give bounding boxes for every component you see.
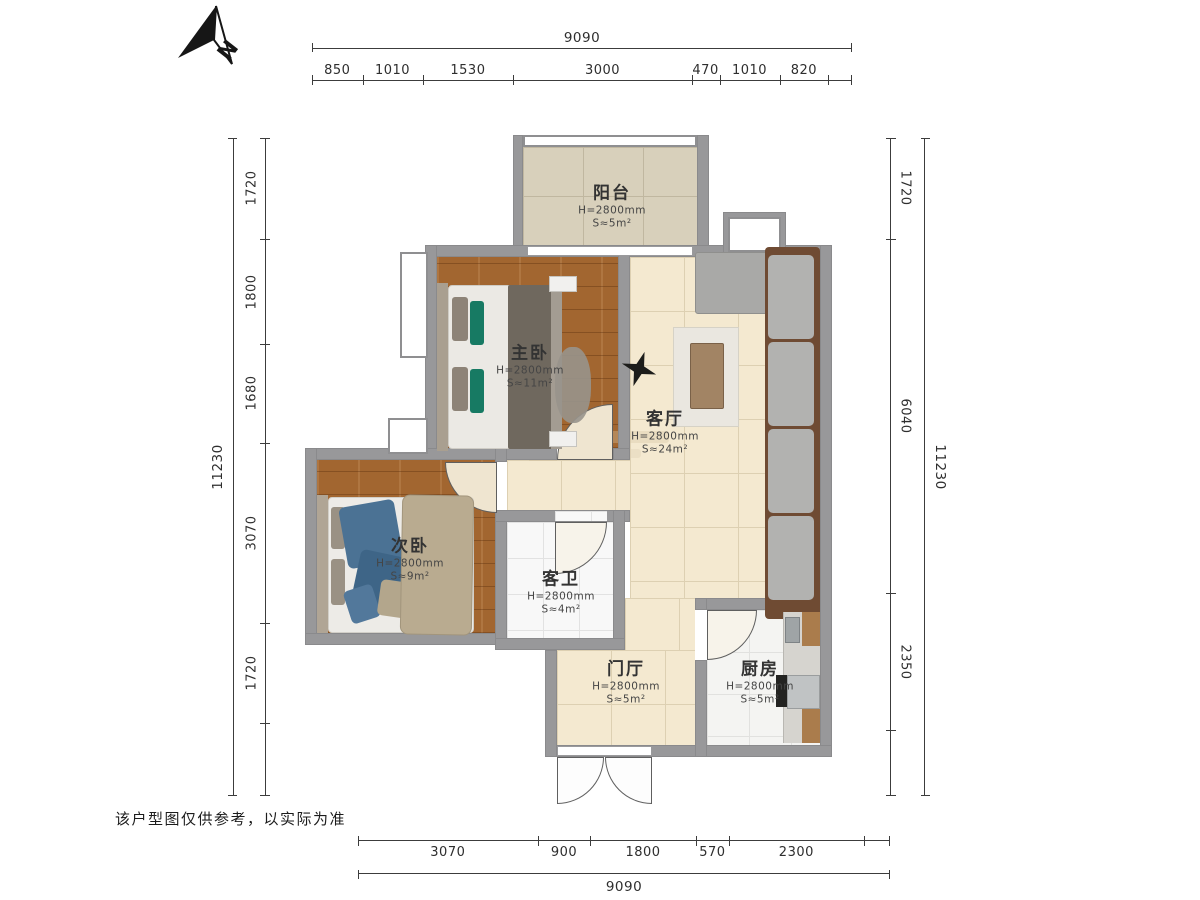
dimension-segment: 1720: [891, 138, 918, 239]
dimension-total-top: 9090: [312, 26, 852, 49]
pillow-teal: [470, 369, 484, 413]
dimension-label: 3070: [244, 515, 259, 550]
sofa-cushion: [768, 516, 814, 600]
nightstand: [549, 431, 577, 447]
wall-segment: [820, 245, 832, 757]
pillow-gray: [452, 367, 468, 411]
dimension-label: 2300: [729, 845, 864, 860]
pillow-gray: [331, 559, 345, 605]
ceiling-fan-icon: [619, 349, 659, 389]
dimension-segment-filler: [828, 55, 852, 80]
room-label-master-bedroom: 主卧 H=2800mm S≈11m²: [496, 343, 564, 391]
dimension-total-left: 11230: [203, 138, 234, 796]
sofa-cushion: [768, 255, 814, 339]
dimension-segments-right: 1720 6040 2350: [890, 138, 918, 796]
dimension-label: 9090: [312, 30, 852, 46]
kitchen-counter-wood: [802, 612, 820, 646]
dimension-label: 3000: [513, 63, 691, 78]
pillow-gray: [452, 297, 468, 341]
dimension-segments-left: 1720 1800 1680 3070 1720: [238, 138, 266, 796]
room-name: 客卫: [527, 569, 595, 590]
dimension-segment: 1010: [720, 55, 780, 80]
floor-plan-page: N: [0, 0, 1200, 900]
wall-segment: [305, 448, 317, 645]
room-height: H=2800mm: [726, 681, 794, 694]
entry-door-leaf-left: [557, 757, 604, 804]
dimension-segment: 1800: [238, 239, 265, 344]
wall-segment: [305, 448, 557, 460]
room-height: H=2800mm: [592, 681, 660, 694]
room-area: S≈9m²: [376, 571, 444, 584]
room-label-second-bedroom: 次卧 H=2800mm S≈9m²: [376, 536, 444, 584]
sliding-door-balcony: [527, 246, 693, 256]
coffee-table: [690, 343, 724, 409]
pillow-teal: [470, 301, 484, 345]
room-area: S≈24m²: [631, 444, 699, 457]
dimension-segment: 900: [538, 841, 591, 865]
dimension-label: 1720: [244, 171, 259, 206]
dimension-label: 1720: [244, 655, 259, 690]
dimension-segment: 1530: [423, 55, 514, 80]
dimension-segment: 6040: [891, 239, 918, 593]
dimension-label: 1530: [423, 63, 514, 78]
window-balcony: [523, 135, 697, 147]
wall-segment: [695, 598, 707, 610]
dimension-segment: 1680: [238, 344, 265, 442]
dimension-segment-filler: [238, 723, 265, 796]
dimension-segments-top: 850 1010 1530 3000 470 1010 820: [312, 55, 852, 81]
dimension-segment: 2350: [891, 593, 918, 731]
room-height: H=2800mm: [376, 558, 444, 571]
room-name: 客厅: [631, 409, 699, 430]
room-name: 门厅: [592, 659, 660, 680]
dimension-chain-bottom: 3070 900 1800 570 2300 9090: [358, 840, 890, 898]
dimension-segment: 3070: [238, 443, 265, 623]
kitchen-sink: [785, 617, 800, 643]
dimension-label: 850: [312, 63, 363, 78]
dimension-segment: 1010: [363, 55, 423, 80]
room-area: S≈4m²: [527, 604, 595, 617]
entry-door-leaf-right: [605, 757, 652, 804]
wall-segment: [613, 510, 625, 650]
dimension-segment: 850: [312, 55, 363, 80]
bed-headboard-second: [317, 495, 328, 633]
dimension-segments-bottom: 3070 900 1800 570 2300: [358, 840, 890, 865]
room-name: 厨房: [726, 659, 794, 680]
dimension-segment: 1800: [590, 841, 695, 865]
wall-segment: [495, 513, 507, 645]
bed-headboard-master: [437, 283, 448, 451]
dimension-label: 1800: [590, 845, 695, 860]
room-area: S≈5m²: [726, 694, 794, 707]
dimension-label: 820: [780, 63, 829, 78]
dimension-label: 9090: [358, 879, 890, 895]
dimension-segment: 1720: [238, 138, 265, 239]
dimension-segment: 820: [780, 55, 829, 80]
dimension-segment: 570: [696, 841, 729, 865]
dimension-total-bottom: 9090: [358, 873, 890, 898]
dimension-segment: 3070: [358, 841, 538, 865]
dimension-label: 11230: [932, 444, 948, 489]
sofa-cushion: [768, 429, 814, 513]
dimension-label: 1010: [363, 63, 423, 78]
dimension-chain-top: 9090 850 1010 1530 3000 470 1010 820: [312, 26, 852, 81]
dimension-label: 900: [538, 845, 591, 860]
entry-door-opening: [557, 746, 652, 756]
room-label-kitchen: 厨房 H=2800mm S≈5m²: [726, 659, 794, 707]
north-arrow-icon: N: [150, 0, 280, 90]
wall-segment: [545, 650, 557, 757]
room-area: S≈11m²: [496, 378, 564, 391]
dimension-label: 1720: [897, 171, 912, 206]
room-area: S≈5m²: [578, 218, 646, 231]
nightstand: [549, 276, 577, 292]
wall-segment: [305, 633, 507, 645]
window-master-bedroom: [400, 252, 428, 358]
dimension-segment: 3000: [513, 55, 691, 80]
dimension-chain-left: 11230 1720 1800 1680 3070 1720: [203, 138, 267, 796]
room-height: H=2800mm: [527, 591, 595, 604]
wall-segment: [613, 448, 630, 460]
room-height: H=2800mm: [631, 431, 699, 444]
dimension-segment: 470: [692, 55, 720, 80]
door-opening-bathroom: [555, 511, 607, 521]
wall-segment: [697, 135, 709, 257]
room-name: 主卧: [496, 343, 564, 364]
dimension-label: 11230: [210, 444, 226, 489]
room-name: 次卧: [376, 536, 444, 557]
room-area: S≈5m²: [592, 694, 660, 707]
dimension-label: 570: [696, 845, 729, 860]
sofa-chaise: [695, 252, 775, 314]
room-label-guest-bathroom: 客卫 H=2800mm S≈4m²: [527, 569, 595, 617]
room-height: H=2800mm: [578, 205, 646, 218]
dimension-label: 470: [692, 63, 720, 78]
dimension-chain-right: 1720 6040 2350 11230: [890, 138, 954, 796]
dimension-segment-filler: [864, 841, 890, 865]
dimension-segment: 2300: [729, 841, 864, 865]
wall-segment: [495, 638, 625, 650]
dimension-label: 1010: [720, 63, 780, 78]
room-label-balcony: 阳台 H=2800mm S≈5m²: [578, 183, 646, 231]
dimension-label: 3070: [358, 845, 538, 860]
dimension-segment: 1720: [238, 623, 265, 724]
dimension-label: 2350: [897, 644, 912, 679]
wall-segment: [695, 660, 707, 757]
dimension-segment-filler: [891, 730, 918, 796]
dimension-total-right: 11230: [924, 138, 955, 796]
dimension-label: 6040: [897, 398, 912, 433]
window-left-small: [388, 418, 428, 454]
wall-segment: [495, 448, 507, 462]
room-label-entrance-hall: 门厅 H=2800mm S≈5m²: [592, 659, 660, 707]
floor-hall-link: [625, 598, 695, 650]
room-name: 阳台: [578, 183, 646, 204]
floor-plan: 阳台 H=2800mm S≈5m² 主卧 H=2800mm S≈11m² 客厅 …: [305, 135, 833, 800]
room-height: H=2800mm: [496, 365, 564, 378]
wall-segment: [513, 135, 523, 257]
dimension-label: 1680: [244, 376, 259, 411]
disclaimer-text: 该户型图仅供参考，以实际为准: [115, 808, 346, 829]
dimension-label: 1800: [244, 274, 259, 309]
sofa-cushion: [768, 342, 814, 426]
room-label-living-room: 客厅 H=2800mm S≈24m²: [631, 409, 699, 457]
